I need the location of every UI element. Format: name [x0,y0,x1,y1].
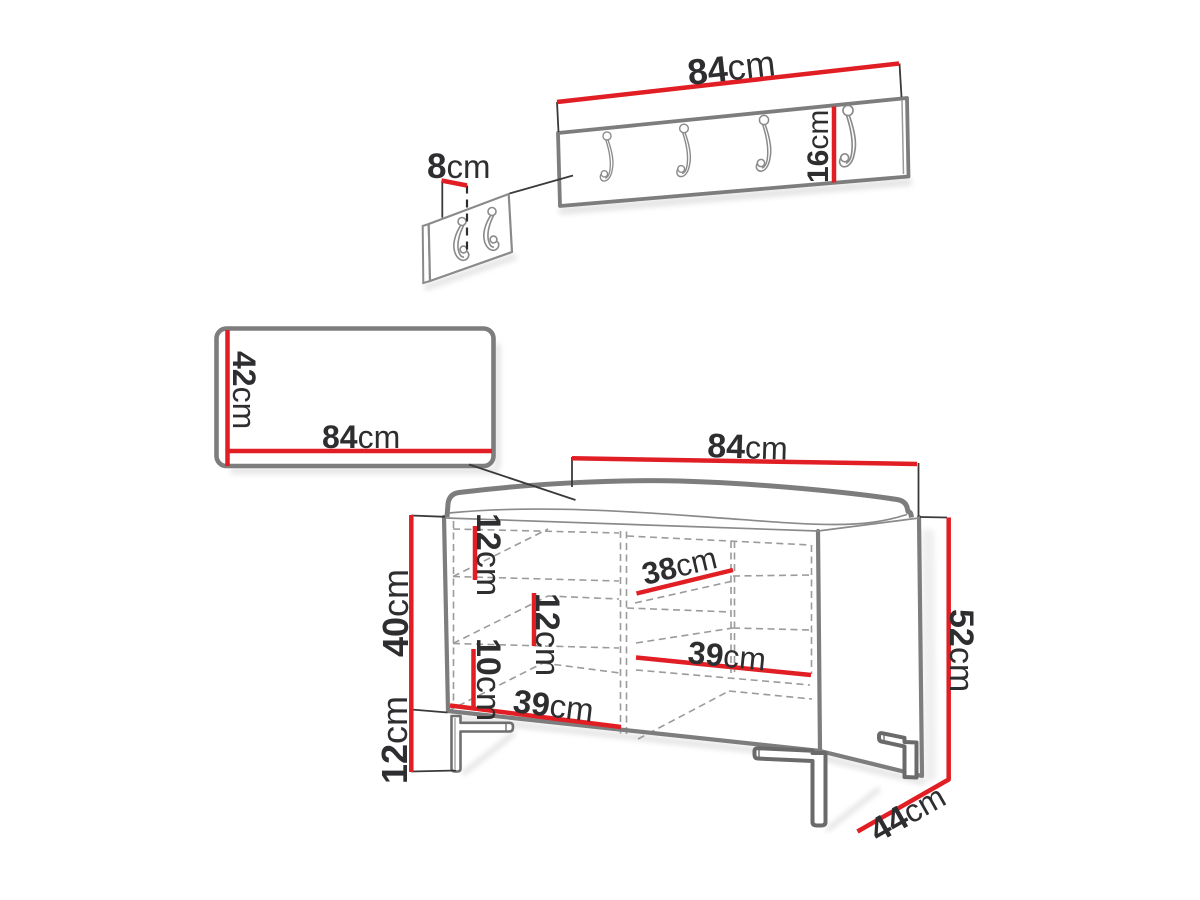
svg-text:39cm: 39cm [686,634,767,677]
svg-text:12cm: 12cm [469,513,507,596]
svg-text:52cm: 52cm [942,609,980,692]
svg-text:12cm: 12cm [374,696,415,784]
svg-text:12cm: 12cm [528,593,566,676]
svg-text:10cm: 10cm [469,638,507,721]
svg-text:84cm: 84cm [707,427,789,468]
svg-text:84cm: 84cm [322,419,400,455]
svg-text:16cm: 16cm [802,110,835,183]
svg-text:42cm: 42cm [226,351,262,429]
svg-text:40cm: 40cm [375,569,416,657]
svg-text:8cm: 8cm [427,147,490,186]
